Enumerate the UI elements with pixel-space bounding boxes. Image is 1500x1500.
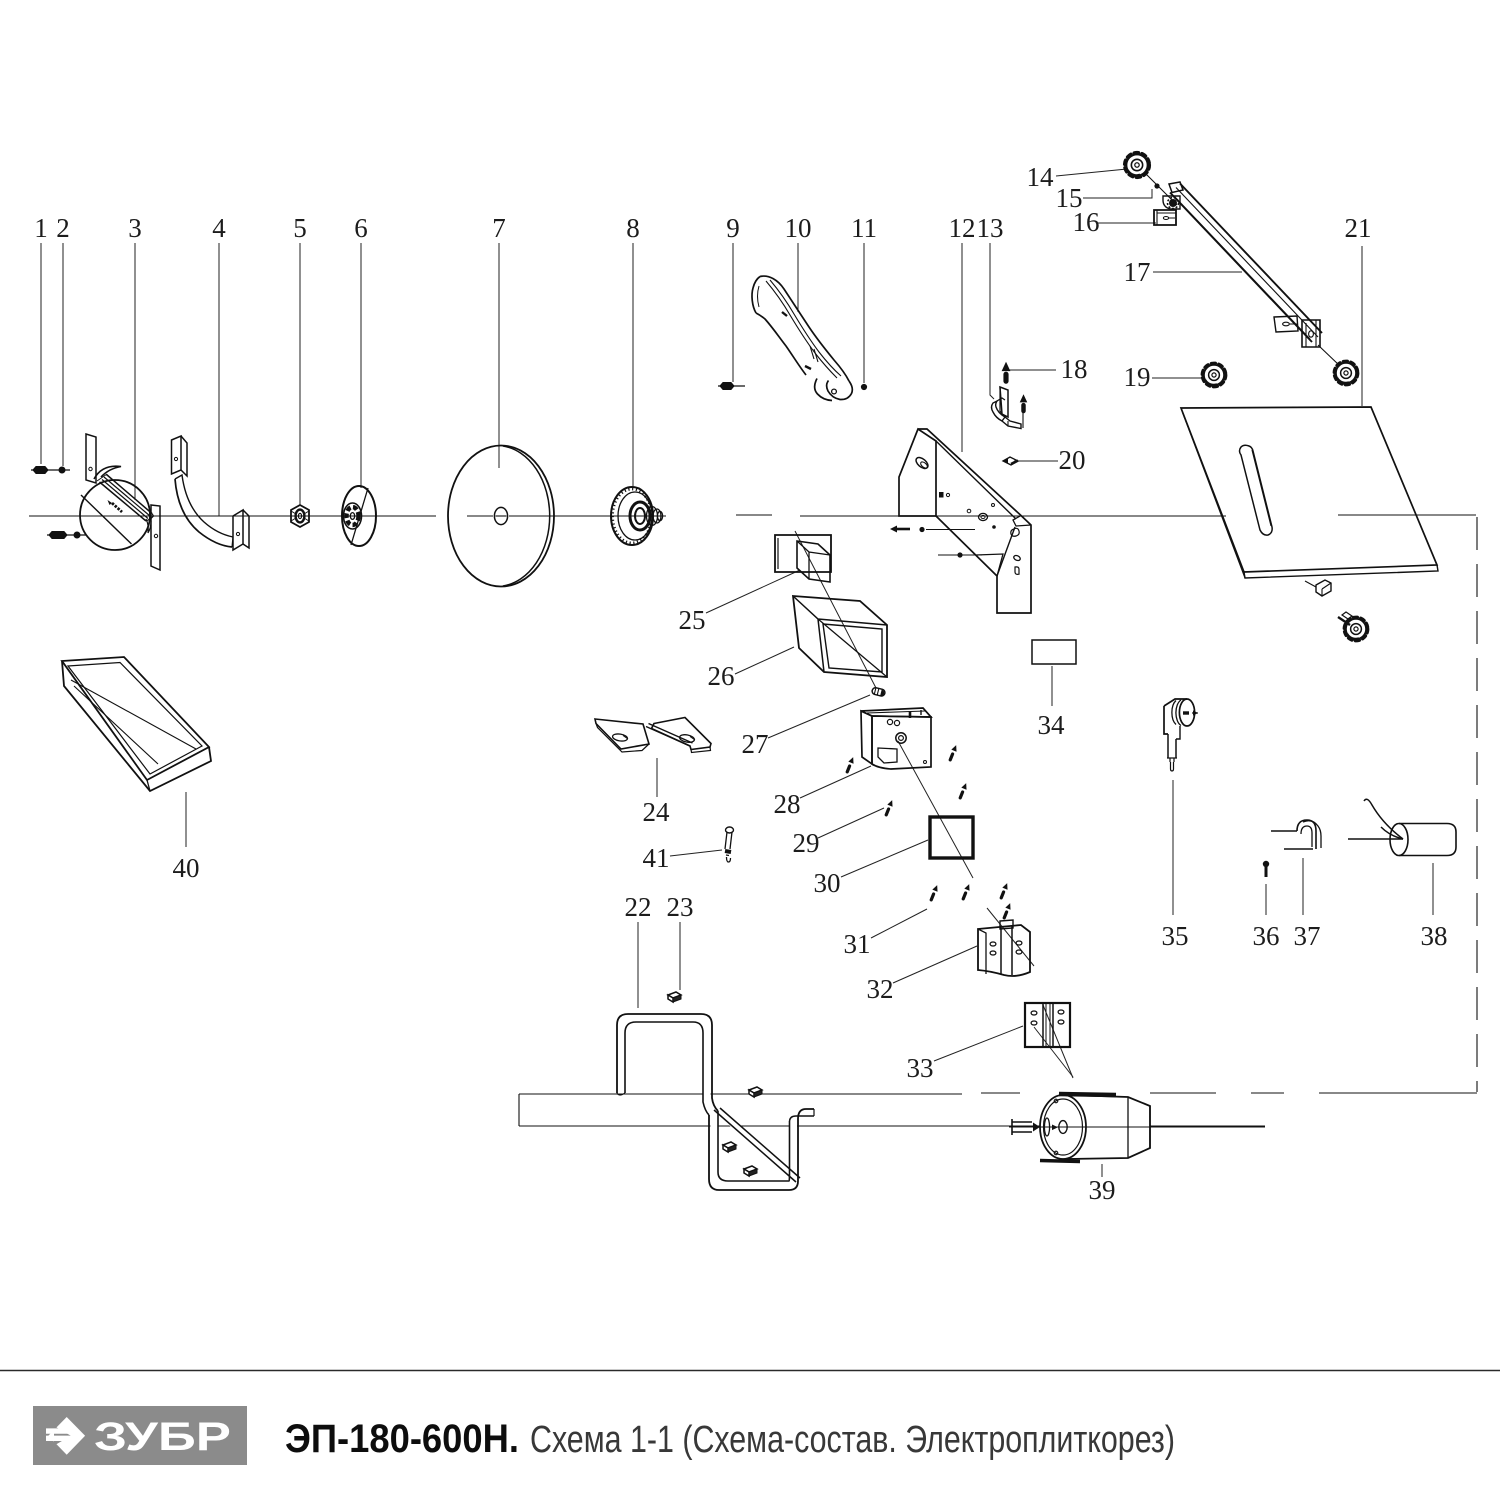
svg-text:29: 29 <box>793 828 820 858</box>
svg-text:28: 28 <box>774 789 801 819</box>
svg-text:ЗУБР: ЗУБР <box>94 1415 231 1459</box>
svg-text:22: 22 <box>625 892 652 922</box>
svg-text:25: 25 <box>679 605 706 635</box>
svg-text:18: 18 <box>1061 354 1088 384</box>
svg-text:36: 36 <box>1253 921 1280 951</box>
svg-text:27: 27 <box>742 729 769 759</box>
svg-text:11: 11 <box>851 213 877 243</box>
svg-text:37: 37 <box>1294 921 1321 951</box>
svg-text:31: 31 <box>844 929 871 959</box>
svg-text:24: 24 <box>643 797 671 827</box>
svg-text:17: 17 <box>1124 257 1151 287</box>
svg-text:19: 19 <box>1124 362 1151 392</box>
svg-text:20: 20 <box>1059 445 1086 475</box>
svg-text:21: 21 <box>1345 213 1372 243</box>
svg-text:7: 7 <box>492 213 506 243</box>
svg-text:14: 14 <box>1027 162 1055 192</box>
svg-text:13: 13 <box>977 213 1004 243</box>
svg-text:32: 32 <box>867 974 894 1004</box>
svg-text:8: 8 <box>626 213 640 243</box>
svg-text:40: 40 <box>173 853 200 883</box>
svg-text:4: 4 <box>212 213 226 243</box>
svg-text:10: 10 <box>785 213 812 243</box>
svg-text:41: 41 <box>643 843 670 873</box>
svg-text:33: 33 <box>907 1053 934 1083</box>
svg-text:Схема 1-1 (Схема-состав. Элект: Схема 1-1 (Схема-состав. Электроплиткоре… <box>530 1419 1175 1461</box>
svg-text:39: 39 <box>1089 1175 1116 1205</box>
svg-text:23: 23 <box>667 892 694 922</box>
svg-text:34: 34 <box>1038 710 1066 740</box>
svg-text:1: 1 <box>34 213 48 243</box>
svg-text:16: 16 <box>1073 207 1100 237</box>
svg-text:38: 38 <box>1421 921 1448 951</box>
svg-text:12: 12 <box>949 213 976 243</box>
svg-text:2: 2 <box>56 213 70 243</box>
svg-text:9: 9 <box>726 213 740 243</box>
svg-text:6: 6 <box>354 213 368 243</box>
svg-text:3: 3 <box>128 213 142 243</box>
svg-text:30: 30 <box>814 868 841 898</box>
svg-text:26: 26 <box>708 661 735 691</box>
svg-text:ЭП-180-600Н.: ЭП-180-600Н. <box>285 1417 519 1461</box>
svg-text:5: 5 <box>293 213 307 243</box>
svg-text:35: 35 <box>1162 921 1189 951</box>
